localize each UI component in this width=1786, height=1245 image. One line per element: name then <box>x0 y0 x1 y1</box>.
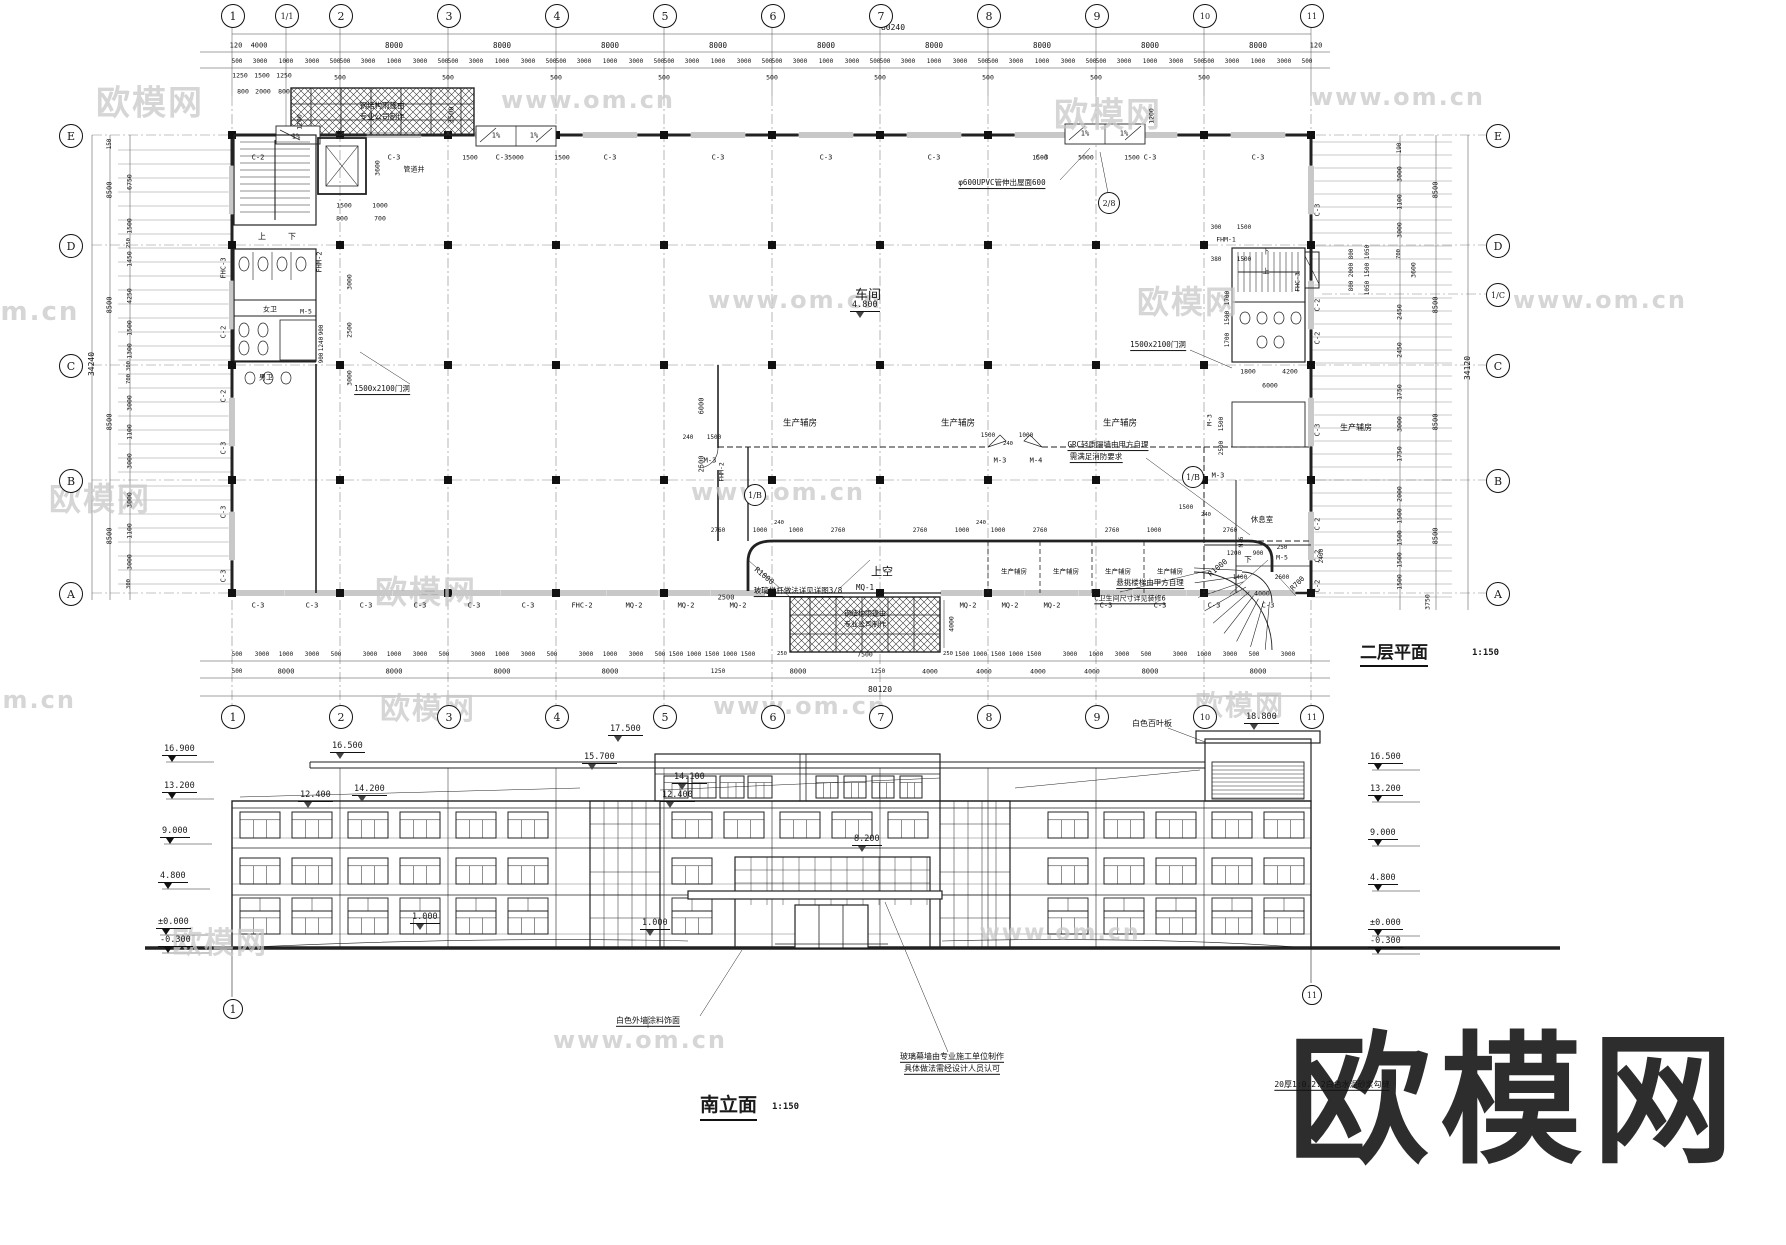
annotation-text: 1000 <box>1009 652 1023 658</box>
annotation-text: 3000 <box>1115 652 1129 658</box>
annotation-text: 1200 <box>297 114 304 130</box>
annotation-text: 生产辅房 <box>941 420 975 429</box>
annotation-text: 8000 <box>709 42 727 50</box>
annotation-text: C-3 <box>1208 602 1221 609</box>
annotation-text: 1000 <box>1251 59 1265 65</box>
annotation-text: 1500 <box>1027 652 1041 658</box>
annotation-text: C-3 <box>712 154 725 161</box>
annotation-text: 1000 <box>1089 652 1103 658</box>
annotation-text: 1000 <box>603 59 617 65</box>
annotation-text: 1250 <box>276 73 292 80</box>
annotation-text: 4000 <box>976 669 992 676</box>
annotation-text: 1500 <box>336 203 352 210</box>
annotation-text: 3000 <box>127 554 134 570</box>
annotation-text: C-3 <box>252 602 265 609</box>
annotation-text: 3000 <box>469 59 483 65</box>
annotation-text: 1000 <box>973 652 987 658</box>
watermark: om.cn <box>0 686 76 714</box>
annotation-text: 1050 <box>1365 281 1371 295</box>
annotation-text: 1000 <box>753 528 767 534</box>
annotation-text: 3000 <box>127 395 134 411</box>
annotation-text: 800 <box>237 89 249 96</box>
annotation-text: 玻璃幕墙由专业施工单位制作 <box>900 1053 1004 1063</box>
annotation-text: 900 <box>1253 551 1264 557</box>
grid-bubble-1/1: 1/1 <box>275 4 299 28</box>
annotation-text: 3000 <box>1173 652 1187 658</box>
annotation-text: 1500 <box>991 652 1005 658</box>
annotation-text: 6000 <box>698 398 705 415</box>
annotation-text: C-3 <box>220 570 227 583</box>
annotation-text: 8000 <box>1249 42 1267 50</box>
annotation-text: 190 <box>1397 143 1403 154</box>
level-mark: 12.400 <box>298 790 333 808</box>
annotation-text: C-2 <box>252 154 265 161</box>
annotation-text: 3600 <box>375 160 382 176</box>
grid-bubble-2: 2 <box>329 705 353 729</box>
annotation-text: M-5 <box>300 309 312 316</box>
annotation-text: 3000 <box>1063 652 1077 658</box>
annotation-text: M-5 <box>1276 555 1288 562</box>
annotation-text: 150 <box>107 139 113 150</box>
level-mark: 18.800 <box>1244 712 1279 730</box>
annotation-text: 800 <box>1349 249 1355 260</box>
annotation-text: 钢结构雨篷由 <box>844 610 886 617</box>
grid-bubble-C: C <box>59 354 83 378</box>
annotation-text: 生产辅房 <box>783 420 817 429</box>
annotation-text: 3000 <box>579 652 593 658</box>
annotation-text: C-3 <box>388 154 401 161</box>
annotation-text: 250 <box>127 238 133 248</box>
annotation-text: C-3 <box>360 602 373 609</box>
annotation-text: C-3 <box>468 602 481 609</box>
level-mark: -0.300 <box>1368 936 1403 954</box>
annotation-text: 1800 <box>1240 369 1256 376</box>
annotation-text: 500 <box>1204 59 1215 65</box>
annotation-text: MQ-2 <box>730 602 747 609</box>
grid-bubble-11: 11 <box>1302 985 1322 1005</box>
annotation-text: 1500 <box>554 155 570 162</box>
grid-bubble-C: C <box>1486 354 1510 378</box>
annotation-text: 1500 <box>981 433 995 439</box>
annotation-text: MQ-1 <box>856 584 874 592</box>
annotation-text: 1500 <box>741 652 755 658</box>
annotation-text: 上 <box>258 233 266 241</box>
annotation-text: 900 <box>319 325 325 336</box>
annotation-text: 3000 <box>629 59 643 65</box>
level-mark: 16.900 <box>162 744 197 762</box>
annotation-text: 500 <box>331 652 342 658</box>
level-mark: 17.500 <box>608 724 643 742</box>
annotation-text: 1000 <box>819 59 833 65</box>
annotation-text: 8500 <box>1432 182 1439 199</box>
grid-bubble-7: 7 <box>869 4 893 28</box>
annotation-text: 1% <box>530 132 538 139</box>
annotation-text: 1500 <box>1237 225 1251 231</box>
annotation-text: 1750 <box>1397 446 1404 462</box>
annotation-text: 1500 <box>1225 311 1231 325</box>
annotation-text: 1700 <box>1225 333 1231 347</box>
annotation-text: 8500 <box>1432 414 1439 431</box>
annotation-text: 1750 <box>1397 384 1404 400</box>
annotation-text: MQ-2 <box>960 602 977 609</box>
annotation-text: 1000 <box>955 528 969 534</box>
watermark: www.om.cn <box>979 921 1140 946</box>
grid-bubble-2/8: 2/8 <box>1098 192 1120 214</box>
annotation-text: 380 <box>1211 257 1222 263</box>
level-mark: 4.800 <box>158 871 188 889</box>
annotation-text: 500 <box>1090 75 1102 82</box>
annotation-text: 2760 <box>1033 528 1047 534</box>
level-mark: -0.300 <box>158 935 193 953</box>
annotation-text: 生产辅房 <box>1157 569 1183 576</box>
annotation-text: 500 <box>988 59 999 65</box>
annotation-text: 生产辅房 <box>1105 569 1131 576</box>
annotation-text: 250 <box>1277 545 1288 551</box>
annotation-text: 3000 <box>253 59 267 65</box>
annotation-text: 2760 <box>831 528 845 534</box>
annotation-text: 1000 <box>1019 433 1033 439</box>
annotation-text: MQ-2 <box>678 602 695 609</box>
annotation-text: 500 <box>232 59 243 65</box>
annotation-text: 1050 <box>1365 245 1371 259</box>
grid-bubble-11: 11 <box>1300 705 1324 729</box>
grid-bubble-8: 8 <box>977 705 1001 729</box>
annotation-text: 8000 <box>494 668 511 675</box>
grid-bubble-1/B: 1/B <box>1182 466 1204 488</box>
annotation-text: 1000 <box>1035 59 1049 65</box>
annotation-text: C-3 <box>1036 154 1049 161</box>
annotation-text: 700 <box>127 374 133 384</box>
annotation-text: 500 <box>232 652 243 658</box>
annotation-text: 34120 <box>1464 356 1472 380</box>
annotation-text: 1000 <box>1197 652 1211 658</box>
annotation-text: 3000 <box>1281 652 1295 658</box>
grid-bubble-B: B <box>1486 469 1510 493</box>
annotation-text: 3000 <box>1225 59 1239 65</box>
grid-bubble-1: 1 <box>221 4 245 28</box>
annotation-text: 1000 <box>1143 59 1157 65</box>
level-mark: 4.800 <box>1368 873 1398 891</box>
annotation-text: 1500 <box>1179 505 1193 511</box>
annotation-text: 3000 <box>361 59 375 65</box>
level-mark: 8.200 <box>852 834 882 852</box>
annotation-text: 7500 <box>857 652 873 659</box>
watermark: www.om.cn <box>553 1026 727 1054</box>
annotation-text: 1500 <box>462 155 478 162</box>
level-mark: 4.800 <box>850 300 880 318</box>
grid-bubble-8: 8 <box>977 4 1001 28</box>
grid-bubble-1: 1 <box>221 705 245 729</box>
annotation-text: 3000 <box>1169 59 1183 65</box>
annotation-text: 1000 <box>789 528 803 534</box>
annotation-text: 240 <box>976 521 986 527</box>
annotation-text: 3000 <box>471 652 485 658</box>
level-mark: 14.100 <box>672 772 707 790</box>
annotation-text: 5000 <box>1078 155 1094 162</box>
annotation-text: 3000 <box>305 652 319 658</box>
annotation-text: 钢结构雨篷由 <box>360 102 405 110</box>
annotation-text: 1500 <box>1219 417 1225 431</box>
annotation-text: 500 <box>547 652 558 658</box>
annotation-text: 240 <box>1003 442 1013 448</box>
grid-bubble-1/C: 1/C <box>1486 283 1510 307</box>
annotation-text: 上 <box>1263 268 1270 275</box>
annotation-text: 1500 <box>127 320 134 336</box>
annotation-text: 500 <box>232 669 243 675</box>
annotation-text: 1% <box>1081 130 1089 137</box>
annotation-text: 4000 <box>922 669 938 676</box>
annotation-text: MQ-2 <box>1044 602 1061 609</box>
annotation-text: 1500 <box>955 652 969 658</box>
level-mark: 15.700 <box>582 752 617 770</box>
annotation-text: 3000 <box>521 59 535 65</box>
annotation-text: M-3 <box>704 457 717 464</box>
annotation-text: 上空 <box>871 566 893 578</box>
annotation-text: 500 <box>655 652 666 658</box>
annotation-text: 500 <box>658 75 670 82</box>
watermark: om.cn <box>0 297 79 327</box>
level-mark: 13.200 <box>162 781 197 799</box>
grid-bubble-1: 1 <box>223 999 243 1019</box>
annotation-text: 5000 <box>508 155 524 162</box>
annotation-text: 1500 <box>127 218 134 234</box>
annotation-text: 6750 <box>127 174 134 190</box>
annotation-text: C-3 <box>220 442 227 455</box>
grid-bubble-A: A <box>59 582 83 606</box>
annotation-text: M-6 <box>1239 537 1245 548</box>
grid-bubble-B: B <box>59 469 83 493</box>
annotation-text: 1000 <box>279 59 293 65</box>
annotation-text: 1000 <box>991 528 1005 534</box>
annotation-text: 240 <box>1201 513 1211 519</box>
annotation-text: 3000 <box>737 59 751 65</box>
grid-bubble-A: A <box>1486 582 1510 606</box>
annotation-text: 3000 <box>901 59 915 65</box>
annotation-text: C-3 <box>496 154 509 161</box>
annotation-text: 800 <box>336 216 348 223</box>
annotation-text: 500 <box>880 59 891 65</box>
annotation-text: C-3 <box>306 602 319 609</box>
annotation-text: 1400 <box>1233 575 1247 581</box>
annotation-text: 1000 <box>372 203 388 210</box>
annotation-text: 4000 <box>1030 669 1046 676</box>
annotation-text: 8500 <box>106 297 113 314</box>
annotation-text: 500 <box>1198 75 1210 82</box>
annotation-text: 1000 <box>1147 528 1161 534</box>
annotation-text: 2000 <box>255 89 271 96</box>
annotation-text: 具体做法需经设计人员认可 <box>904 1065 1000 1075</box>
annotation-text: 1500x2100门洞 <box>1130 341 1186 351</box>
grid-bubble-2: 2 <box>329 4 353 28</box>
level-mark: 1.000 <box>640 918 670 936</box>
annotation-text: 管道井 <box>404 166 425 173</box>
annotation-text: C-3 <box>928 154 941 161</box>
annotation-text: 3000 <box>1397 166 1404 182</box>
annotation-text: C-2 <box>1314 299 1321 312</box>
annotation-text: 3500 <box>448 107 455 124</box>
annotation-text: 8000 <box>278 668 295 675</box>
annotation-text: 1000 <box>387 59 401 65</box>
annotation-text: 4000 <box>251 42 268 49</box>
annotation-text: 1000 <box>723 652 737 658</box>
annotation-text: 700 <box>374 216 386 223</box>
annotation-text: 3000 <box>1277 59 1291 65</box>
annotation-text: 下 <box>1244 556 1252 564</box>
annotation-text: 4000 <box>949 616 956 632</box>
annotation-text: 800 <box>278 89 290 96</box>
plan-title: 二层平面 <box>1360 638 1428 667</box>
annotation-text: 3600 <box>1411 262 1418 278</box>
grid-bubble-7: 7 <box>869 705 893 729</box>
annotation-text: 3000 <box>1117 59 1131 65</box>
annotation-text: 3750 <box>1425 594 1432 610</box>
annotation-text: 1500 <box>707 435 721 441</box>
annotation-text: 1500 <box>1397 508 1404 524</box>
annotation-text: 8500 <box>106 414 113 431</box>
grid-bubble-9: 9 <box>1085 705 1109 729</box>
annotation-text: 500 <box>334 75 346 82</box>
annotation-text: 8500 <box>106 182 113 199</box>
annotation-text: 500 <box>1249 652 1260 658</box>
annotation-text: 8500 <box>1432 297 1439 314</box>
annotation-text: 240 <box>774 521 784 527</box>
annotation-text: 8000 <box>386 668 403 675</box>
grid-bubble-E: E <box>59 124 83 148</box>
annotation-text: 240 <box>683 435 694 441</box>
annotation-text: MQ-2 <box>626 602 643 609</box>
annotation-text: 3000 <box>793 59 807 65</box>
annotation-text: 1500 <box>1237 257 1251 263</box>
grid-bubble-10: 10 <box>1193 705 1217 729</box>
annotation-text: 1500 <box>1365 263 1371 277</box>
annotation-text: 3000 <box>1009 59 1023 65</box>
annotation-text: 8000 <box>385 42 403 50</box>
annotation-text: C-3 <box>604 154 617 161</box>
annotation-text: 1250 <box>232 73 248 80</box>
annotation-text: 1250 <box>871 669 885 675</box>
annotation-text: 2760 <box>913 528 927 534</box>
annotation-text: 500 <box>982 75 994 82</box>
annotation-text: 1% <box>292 133 300 140</box>
watermark: 欧模网 <box>96 76 204 125</box>
annotation-text: C-2 <box>1314 332 1321 345</box>
grid-bubble-9: 9 <box>1085 4 1109 28</box>
annotation-text: 700 <box>1397 249 1403 259</box>
grid-bubble-6: 6 <box>761 4 785 28</box>
annotation-text: 3000 <box>413 652 427 658</box>
annotation-text: C-2 <box>1314 580 1321 593</box>
annotation-text: 8000 <box>1141 42 1159 50</box>
annotation-text: 8000 <box>1033 42 1051 50</box>
annotation-text: C-3 <box>414 602 427 609</box>
grid-bubble-4: 4 <box>545 4 569 28</box>
annotation-text: 悬挑楼梯由甲方自理 <box>1116 579 1184 589</box>
annotation-text: 500 <box>1302 59 1313 65</box>
annotation-text: FHM-2 <box>719 462 726 482</box>
grid-bubble-1/B: 1/B <box>744 484 766 506</box>
annotation-text: 1000 <box>387 652 401 658</box>
annotation-text: 1000 <box>279 652 293 658</box>
annotation-text: 1500 <box>669 652 683 658</box>
annotation-text: FHC-3 <box>1295 272 1302 292</box>
annotation-text: GRC轻质隔墙由甲方自理 <box>1067 441 1148 451</box>
annotation-text: 需满足消防要求 <box>1070 453 1123 463</box>
annotation-text: 8000 <box>493 42 511 50</box>
annotation-text: 生产辅房 <box>1053 569 1079 576</box>
annotation-text: FHM-2 <box>316 251 323 272</box>
level-mark: 16.500 <box>330 741 365 759</box>
annotation-text: 500 <box>772 59 783 65</box>
grid-bubble-4: 4 <box>545 705 569 729</box>
annotation-text: 500 <box>766 75 778 82</box>
annotation-text: 2400 <box>1319 549 1325 563</box>
level-mark: ±0.000 <box>1368 918 1403 936</box>
annotation-text: 1500 <box>705 652 719 658</box>
watermark: www.om.cn <box>713 692 887 720</box>
annotation-text: 34240 <box>88 352 96 376</box>
annotation-text: 900 <box>319 353 325 364</box>
annotation-text: C-3 <box>220 506 227 519</box>
annotation-text: 500 <box>874 75 886 82</box>
annotation-text: C-3 <box>522 602 535 609</box>
annotation-text: 3000 <box>347 370 354 386</box>
annotation-text: 3000 <box>347 274 354 290</box>
annotation-text: 3000 <box>413 59 427 65</box>
annotation-text: 1000 <box>495 652 509 658</box>
annotation-text: C-3 <box>1314 204 1321 217</box>
cad-canvas: 二层平面 1:150 南立面 1:150 欧模网 欧模网www.om.cn欧模网… <box>0 0 1786 1245</box>
annotation-text: 3000 <box>1397 222 1404 238</box>
annotation-text: C-3 <box>820 154 833 161</box>
level-mark: ±0.000 <box>156 917 191 935</box>
annotation-text: 生产辅房 <box>1340 424 1372 432</box>
annotation-text: 800 <box>1349 281 1355 292</box>
annotation-text: M-3 <box>994 457 1007 464</box>
annotation-text: 1100 <box>1397 194 1404 210</box>
annotation-text: 3000 <box>629 652 643 658</box>
watermark: 欧模网 <box>1054 88 1162 137</box>
annotation-text: 1200 <box>1149 108 1156 124</box>
annotation-text: 300 <box>127 579 133 589</box>
annotation-text: 1500 <box>254 73 270 80</box>
annotation-text: 2500 <box>1219 441 1225 455</box>
annotation-text: 1500 <box>1397 574 1404 590</box>
annotation-text: 1500 <box>1124 155 1140 162</box>
annotation-text: 4250 <box>127 288 134 304</box>
annotation-text: 男卫 <box>259 374 273 381</box>
annotation-text: 1500x2100门洞 <box>354 385 410 395</box>
watermark: 欧模网 <box>380 684 476 728</box>
annotation-text: 500 <box>442 75 454 82</box>
annotation-text: 生产辅房 <box>1103 420 1137 429</box>
annotation-text: 500 <box>439 652 450 658</box>
level-mark: 16.500 <box>1368 752 1403 770</box>
annotation-text: 生产辅房 <box>1001 569 1027 576</box>
annotation-text: 3000 <box>363 652 377 658</box>
annotation-text: C-2 <box>1314 518 1321 531</box>
annotation-text: 8500 <box>1432 528 1439 545</box>
annotation-text: 8000 <box>790 668 807 675</box>
annotation-text: C-3 <box>1144 154 1157 161</box>
watermark: www.om.cn <box>501 86 675 114</box>
annotation-text: 3000 <box>1061 59 1075 65</box>
annotation-text: 休息室 <box>1251 516 1274 524</box>
annotation-text: 20厚1:0.2:2白色水泥砂浆勾缝 <box>1274 1081 1389 1091</box>
annotation-text: 1000 <box>603 652 617 658</box>
annotation-text: C-2 <box>220 390 227 403</box>
annotation-text: C卫生间尺寸详见装修6 <box>1094 595 1165 604</box>
annotation-text: 1250 <box>711 669 725 675</box>
